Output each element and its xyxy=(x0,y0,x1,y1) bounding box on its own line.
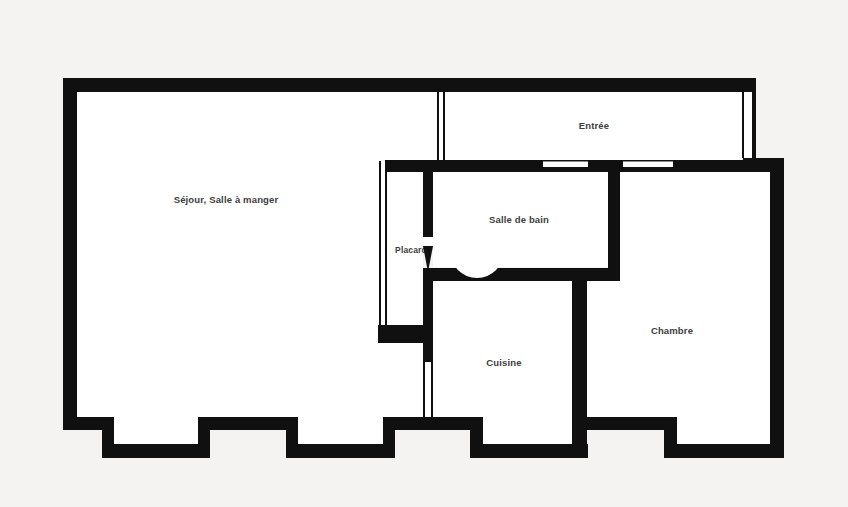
wall-cuisine-bay-bottom xyxy=(470,444,588,458)
wall-outer-left xyxy=(63,78,77,430)
floor-chambre-upper xyxy=(620,172,770,281)
door-swing-arc xyxy=(450,224,504,278)
floor-chambre-southeast xyxy=(677,417,770,444)
window-sejour-cuisine-line-right xyxy=(431,362,433,417)
floor-cuisine xyxy=(433,281,572,418)
floor-plan-drawing: Séjour, Salle à manger Entrée Salle de b… xyxy=(0,0,848,507)
floor-cuisine-bay xyxy=(483,417,572,444)
window-sejour-cuisine-line-left xyxy=(423,362,425,417)
wall-entree-right-outer xyxy=(752,92,756,158)
wall-bottom-segment-2 xyxy=(198,417,298,430)
door-opening-chambre xyxy=(623,162,673,168)
wall-sejour-cuisine xyxy=(423,268,433,362)
window-sejour-entree-line-right xyxy=(443,92,445,160)
wall-bain-south xyxy=(423,268,620,281)
floor-sejour-bay-left xyxy=(114,417,198,444)
label-salle-de-bain: Salle de bain xyxy=(489,214,549,225)
window-sejour-entree-line-left xyxy=(437,92,439,160)
wall-bay1-bottom xyxy=(102,444,210,458)
wall-bottom-segment-3 xyxy=(383,417,483,430)
wall-outer-top xyxy=(63,78,756,92)
wall-placard-bottom xyxy=(378,325,433,343)
partition-placard-line-left xyxy=(379,161,381,325)
floor-sejour-top xyxy=(77,92,437,160)
partition-placard-line-right xyxy=(385,161,387,325)
wall-bain-chambre xyxy=(608,160,620,281)
wall-outer-right xyxy=(770,158,784,458)
floor-plan-canvas: Séjour, Salle à manger Entrée Salle de b… xyxy=(0,0,848,507)
label-chambre: Chambre xyxy=(651,325,693,336)
label-placard: Placard xyxy=(395,245,427,255)
door-opening-salle-de-bain xyxy=(543,162,588,168)
label-sejour: Séjour, Salle à manger xyxy=(174,194,279,205)
label-entree: Entrée xyxy=(579,120,609,131)
wall-placard-right xyxy=(423,160,433,237)
label-cuisine: Cuisine xyxy=(486,357,521,368)
wall-chambre-bottom-left xyxy=(587,417,677,430)
wall-outer-bottom-right xyxy=(664,444,784,458)
window-entree-right-line xyxy=(742,92,744,158)
floor-placard xyxy=(381,161,423,325)
wall-bay2-bottom xyxy=(286,444,395,458)
wall-cuisine-chambre xyxy=(572,272,587,458)
floor-chambre-main xyxy=(587,281,770,418)
floor-sejour-bay-right xyxy=(298,417,383,444)
